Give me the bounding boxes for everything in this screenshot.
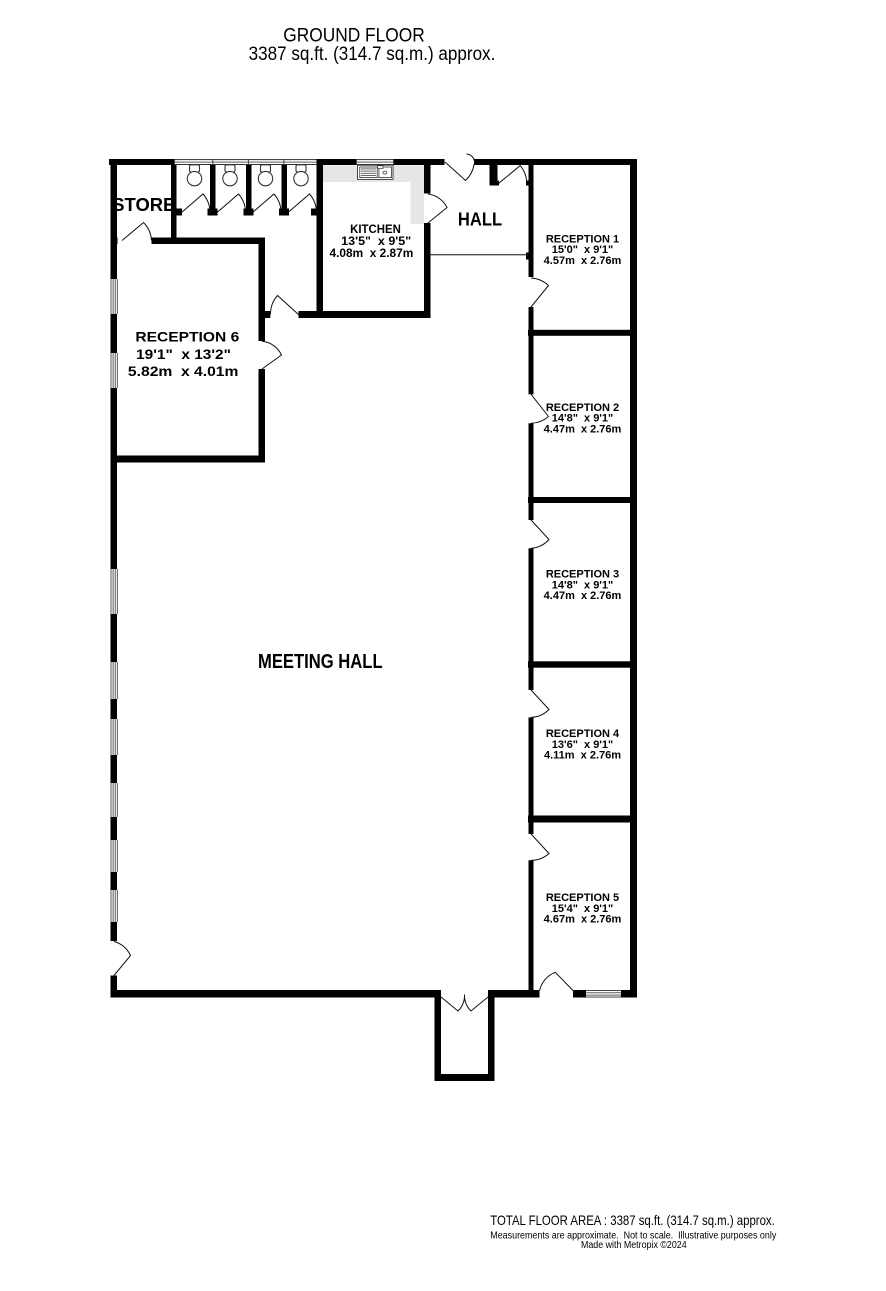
svg-text:RECEPTION 6: RECEPTION 6 <box>135 328 239 344</box>
svg-text:STORE: STORE <box>112 195 175 215</box>
svg-text:4.57m x 2.76m: 4.57m x 2.76m <box>544 255 622 267</box>
svg-text:4.11m x 2.76m: 4.11m x 2.76m <box>544 750 621 762</box>
svg-text:5.82m x 4.01m: 5.82m x 4.01m <box>128 363 239 379</box>
svg-text:Made with Metropix ©2024: Made with Metropix ©2024 <box>581 1240 687 1251</box>
svg-text:3387 sq.ft. (314.7 sq.m.) appr: 3387 sq.ft. (314.7 sq.m.) approx. <box>249 44 496 65</box>
svg-text:TOTAL FLOOR AREA : 3387 sq.ft.: TOTAL FLOOR AREA : 3387 sq.ft. (314.7 sq… <box>490 1212 775 1228</box>
svg-text:4.47m x 2.76m: 4.47m x 2.76m <box>544 590 622 602</box>
svg-text:MEETING HALL: MEETING HALL <box>258 651 383 673</box>
svg-text:4.67m x 2.76m: 4.67m x 2.76m <box>544 914 622 926</box>
svg-text:HALL: HALL <box>458 210 502 230</box>
svg-text:19'1" x 13'2": 19'1" x 13'2" <box>136 346 231 362</box>
svg-text:4.08m x 2.87m: 4.08m x 2.87m <box>330 246 414 260</box>
svg-text:4.47m x 2.76m: 4.47m x 2.76m <box>544 423 622 435</box>
